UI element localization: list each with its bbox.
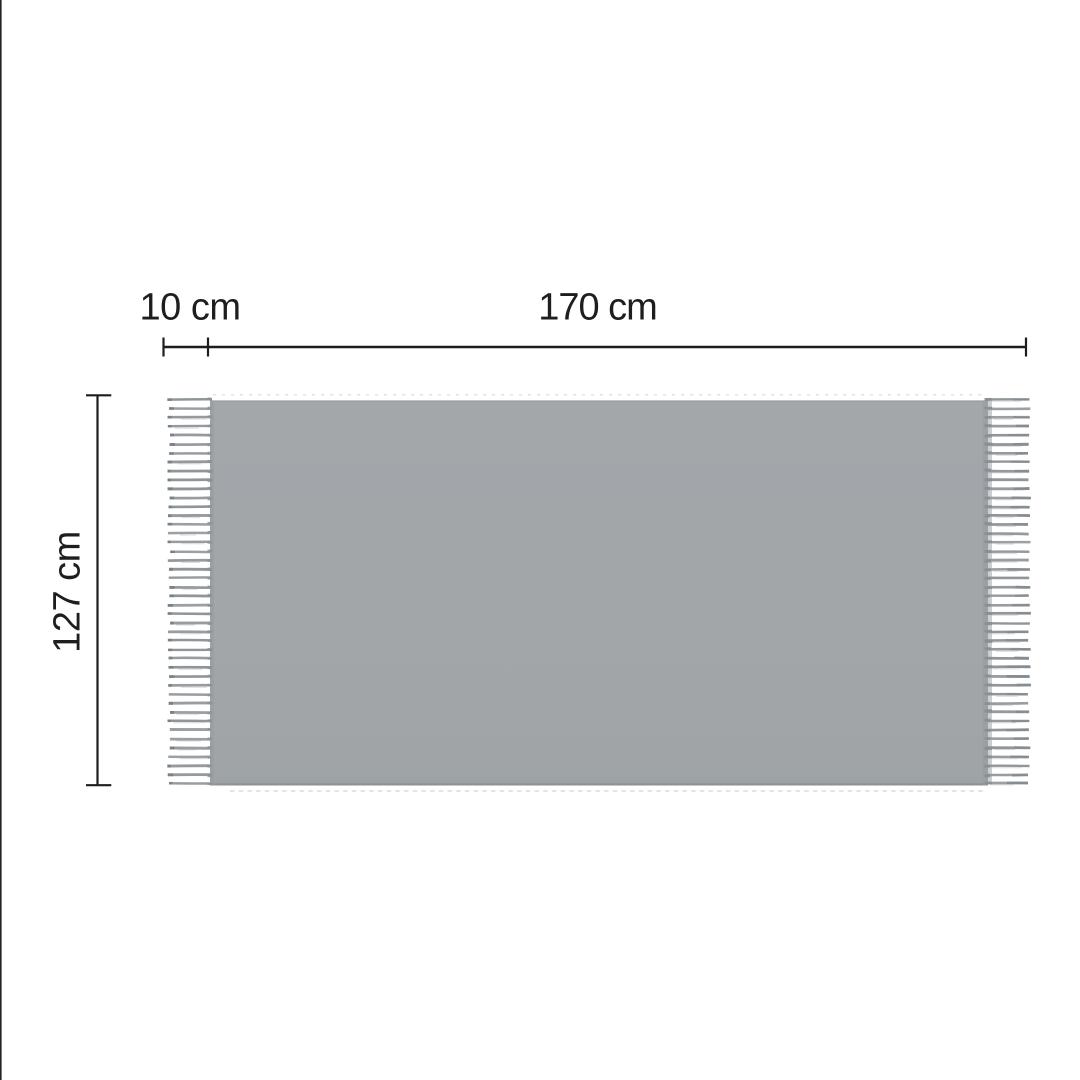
svg-text:127 cm: 127 cm — [47, 531, 89, 653]
svg-text:170 cm: 170 cm — [538, 287, 657, 329]
svg-text:10 cm: 10 cm — [140, 287, 241, 329]
